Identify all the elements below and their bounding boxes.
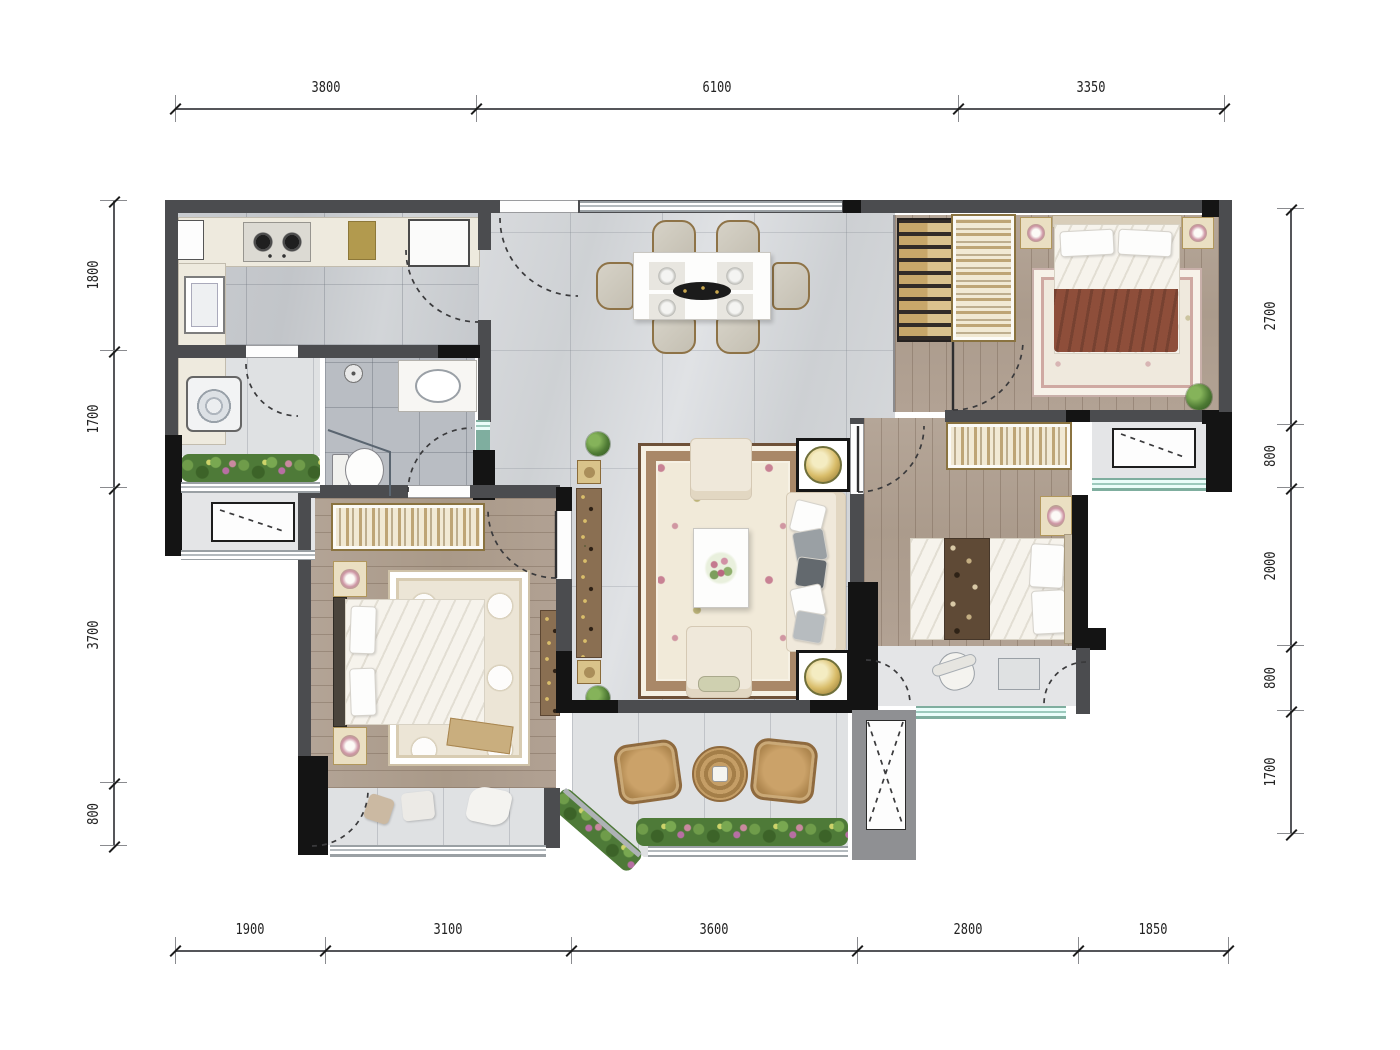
- dim-label-left-2: 3700: [84, 620, 102, 649]
- dim-line-right: [1290, 208, 1292, 833]
- dim-label-right-4: 1700: [1261, 757, 1279, 786]
- dim-label-top-0: 3800: [311, 78, 340, 96]
- dim-label-bottom-0: 1900: [236, 920, 265, 938]
- dim-line-top: [175, 108, 1224, 110]
- dim-line-left: [113, 200, 115, 845]
- dim-label-bottom-4: 1850: [1139, 920, 1168, 938]
- dim-label-bottom-2: 3600: [700, 920, 729, 938]
- dim-label-bottom-1: 3100: [434, 920, 463, 938]
- dim-label-top-2: 3350: [1077, 78, 1106, 96]
- dimension-layer: 3800610033501900310036002800185018001700…: [0, 0, 1400, 1050]
- dim-label-left-1: 1700: [84, 404, 102, 433]
- dim-label-top-1: 6100: [703, 78, 732, 96]
- dim-label-right-2: 2000: [1261, 552, 1279, 581]
- dim-label-left-3: 800: [84, 803, 102, 825]
- floor-plan-canvas: 3800610033501900310036002800185018001700…: [0, 0, 1400, 1050]
- dim-label-right-3: 800: [1261, 667, 1279, 689]
- dim-label-right-0: 2700: [1261, 302, 1279, 331]
- dim-label-left-0: 1800: [84, 261, 102, 290]
- dim-label-bottom-3: 2800: [953, 920, 982, 938]
- dim-label-right-1: 800: [1261, 445, 1279, 467]
- dim-line-bottom: [175, 950, 1228, 952]
